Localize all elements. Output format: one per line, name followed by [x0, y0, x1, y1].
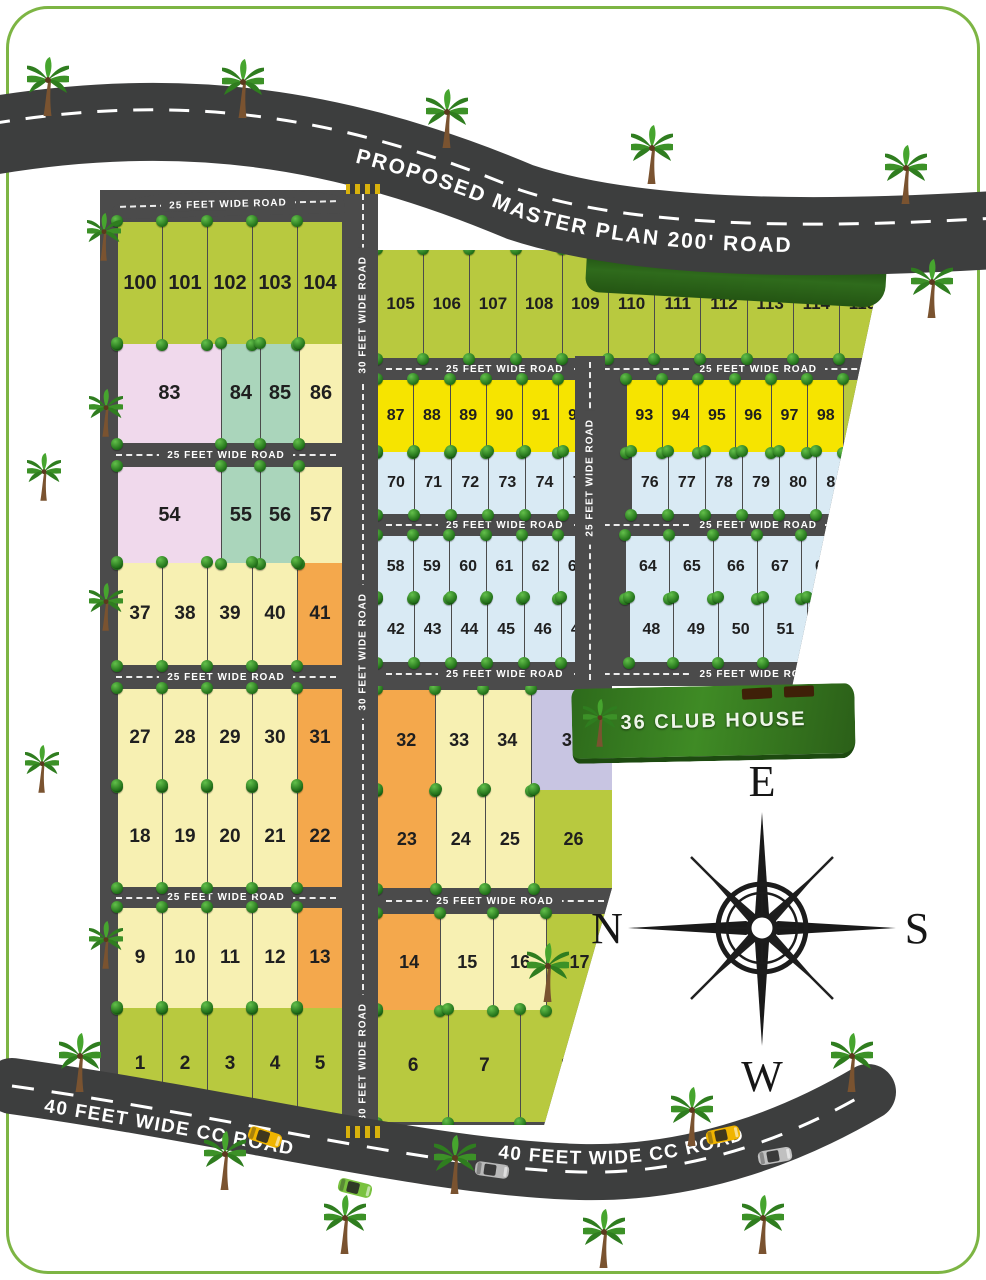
plot-44: 44 — [452, 598, 488, 662]
plot-45: 45 — [488, 598, 524, 662]
plot-12: 12 — [253, 908, 297, 1008]
plot-15: 15 — [441, 914, 493, 1010]
road-label: 25 FEET WIDE ROAD — [161, 197, 295, 211]
plot-28: 28 — [163, 689, 207, 786]
road-30ft-central: 30 FEET WIDE ROAD 30 FEET WIDE ROAD 30 F… — [348, 188, 378, 1136]
plot-64: 64 — [626, 536, 669, 598]
plot-85: 85 — [261, 344, 299, 443]
plot-40: 40 — [253, 563, 297, 665]
plot-93: 93 — [627, 380, 662, 452]
plot-46: 46 — [525, 598, 561, 662]
plot-25: 25 — [486, 790, 534, 888]
plot-94: 94 — [663, 380, 698, 452]
row-27-31: 2728293031 — [118, 689, 342, 786]
plot-24: 24 — [437, 790, 485, 888]
plot-1: 1 — [118, 1008, 162, 1120]
plot-50: 50 — [719, 598, 763, 662]
road-25ft-vertical: 25 FEET WIDE ROAD — [575, 356, 605, 686]
plot-103: 103 — [253, 222, 297, 344]
plot-4: 4 — [253, 1008, 297, 1120]
clubhouse-label: 36 CLUB HOUSE — [620, 708, 806, 735]
plot-96: 96 — [736, 380, 771, 452]
plot-2: 2 — [163, 1008, 207, 1120]
row-58-69: 585960616263646566676869 — [378, 536, 885, 598]
row-54-57: 54555657 — [118, 467, 342, 563]
plot-77: 77 — [669, 452, 705, 514]
plot-43: 43 — [415, 598, 451, 662]
row-83-86: 83848586 — [118, 344, 342, 443]
row-1-5: 12345 — [118, 1008, 342, 1120]
plot-3: 3 — [208, 1008, 252, 1120]
plot-74: 74 — [526, 452, 562, 514]
plot-67: 67 — [758, 536, 801, 598]
plot-6: 6 — [378, 1010, 448, 1122]
plot-14: 14 — [378, 914, 440, 1010]
row-23-26: 23242526 — [378, 790, 612, 888]
plot-18: 18 — [118, 786, 162, 887]
plot-88: 88 — [414, 380, 449, 452]
plot-61: 61 — [487, 536, 522, 598]
plot-102: 102 — [208, 222, 252, 344]
plot-86: 86 — [300, 344, 342, 443]
row-70-82: 70717273747576777879808182 — [378, 452, 885, 514]
plot-106: 106 — [424, 250, 469, 358]
road-label: 25 FEET WIDE ROAD — [159, 892, 293, 903]
plot-31: 31 — [298, 689, 342, 786]
road-label: 25 FEET WIDE ROAD — [159, 672, 293, 683]
plot-108: 108 — [517, 250, 562, 358]
plot-84: 84 — [222, 344, 260, 443]
plot-23: 23 — [378, 790, 436, 888]
plot-19: 19 — [163, 786, 207, 887]
plot-30: 30 — [253, 689, 297, 786]
plot-39: 39 — [208, 563, 252, 665]
plot-98: 98 — [808, 380, 843, 452]
plot-58: 58 — [378, 536, 413, 598]
plot-65: 65 — [670, 536, 713, 598]
plot-73: 73 — [489, 452, 525, 514]
plot-90: 90 — [487, 380, 522, 452]
plot-76: 76 — [632, 452, 668, 514]
plot-89: 89 — [451, 380, 486, 452]
plot-22: 22 — [298, 786, 342, 887]
plot-48: 48 — [630, 598, 674, 662]
plot-71: 71 — [415, 452, 451, 514]
plot-97: 97 — [772, 380, 807, 452]
plot-33: 33 — [436, 690, 483, 790]
plot-20: 20 — [208, 786, 252, 887]
plot-72: 72 — [452, 452, 488, 514]
plot-5: 5 — [298, 1008, 342, 1120]
plot-13: 13 — [298, 908, 342, 1008]
plot-34: 34 — [484, 690, 531, 790]
block-left: 25 FEET WIDE ROAD 100101102103104 838485… — [100, 190, 348, 1128]
road-label: 25 FEET WIDE ROAD — [159, 450, 293, 461]
row-37-41: 3738394041 — [118, 563, 342, 665]
road-label: 25 FEET WIDE ROAD — [438, 520, 572, 531]
plot-104: 104 — [298, 222, 342, 344]
plot-59: 59 — [414, 536, 449, 598]
parked-car — [784, 685, 814, 697]
plot-70: 70 — [378, 452, 414, 514]
row-87-99: 87888990919293949596979899 — [378, 380, 885, 452]
plot-101: 101 — [163, 222, 207, 344]
plot-55: 55 — [222, 467, 260, 563]
plot-95: 95 — [699, 380, 734, 452]
plot-9: 9 — [118, 908, 162, 1008]
parked-car — [742, 687, 773, 700]
plot-7: 7 — [449, 1010, 519, 1122]
plot-29: 29 — [208, 689, 252, 786]
plot-87: 87 — [378, 380, 413, 452]
road-label: 30 FEET WIDE ROAD — [358, 585, 369, 719]
plot-32: 32 — [378, 690, 435, 790]
road-label: 25 FEET WIDE ROAD — [438, 364, 572, 375]
row-100-104: 100101102103104 — [118, 222, 342, 344]
plot-54: 54 — [118, 467, 221, 563]
row-18-22: 1819202122 — [118, 786, 342, 887]
plot-37: 37 — [118, 563, 162, 665]
plot-42: 42 — [378, 598, 414, 662]
road-gap — [601, 452, 631, 514]
plot-21: 21 — [253, 786, 297, 887]
plot-41: 41 — [298, 563, 342, 665]
row-14-17: 14151617 — [378, 914, 612, 1010]
plot-105: 105 — [378, 250, 423, 358]
road-label: 25 FEET WIDE ROAD — [585, 411, 596, 545]
plot-100: 100 — [118, 222, 162, 344]
plot-57: 57 — [300, 467, 342, 563]
road-25ft-left-3: 25 FEET WIDE ROAD — [108, 887, 344, 908]
plot-16: 16 — [494, 914, 546, 1010]
plot-60: 60 — [450, 536, 485, 598]
plot-38: 38 — [163, 563, 207, 665]
plot-80: 80 — [780, 452, 816, 514]
plot-78: 78 — [706, 452, 742, 514]
row-9-13: 910111213 — [118, 908, 342, 1008]
road-25ft-top-left: 25 FEET WIDE ROAD — [112, 189, 345, 219]
plot-107: 107 — [470, 250, 515, 358]
plot-62: 62 — [523, 536, 558, 598]
plot-26: 26 — [535, 790, 612, 888]
plot-27: 27 — [118, 689, 162, 786]
road-label: 30 FEET WIDE ROAD — [358, 248, 369, 382]
road-label: 25 FEET WIDE ROAD — [438, 669, 572, 680]
site-plan: 25 FEET WIDE ROAD 100101102103104 838485… — [0, 0, 986, 1280]
plot-66: 66 — [714, 536, 757, 598]
plot-56: 56 — [261, 467, 299, 563]
plot-83: 83 — [118, 344, 221, 443]
road-label: 30 FEET WIDE ROAD — [358, 995, 369, 1129]
road-label: 25 FEET WIDE ROAD — [428, 896, 562, 907]
plot-11: 11 — [208, 908, 252, 1008]
plot-49: 49 — [674, 598, 718, 662]
plot-79: 79 — [743, 452, 779, 514]
road-25ft-left-2: 25 FEET WIDE ROAD — [108, 665, 344, 689]
plot-10: 10 — [163, 908, 207, 1008]
plot-91: 91 — [523, 380, 558, 452]
